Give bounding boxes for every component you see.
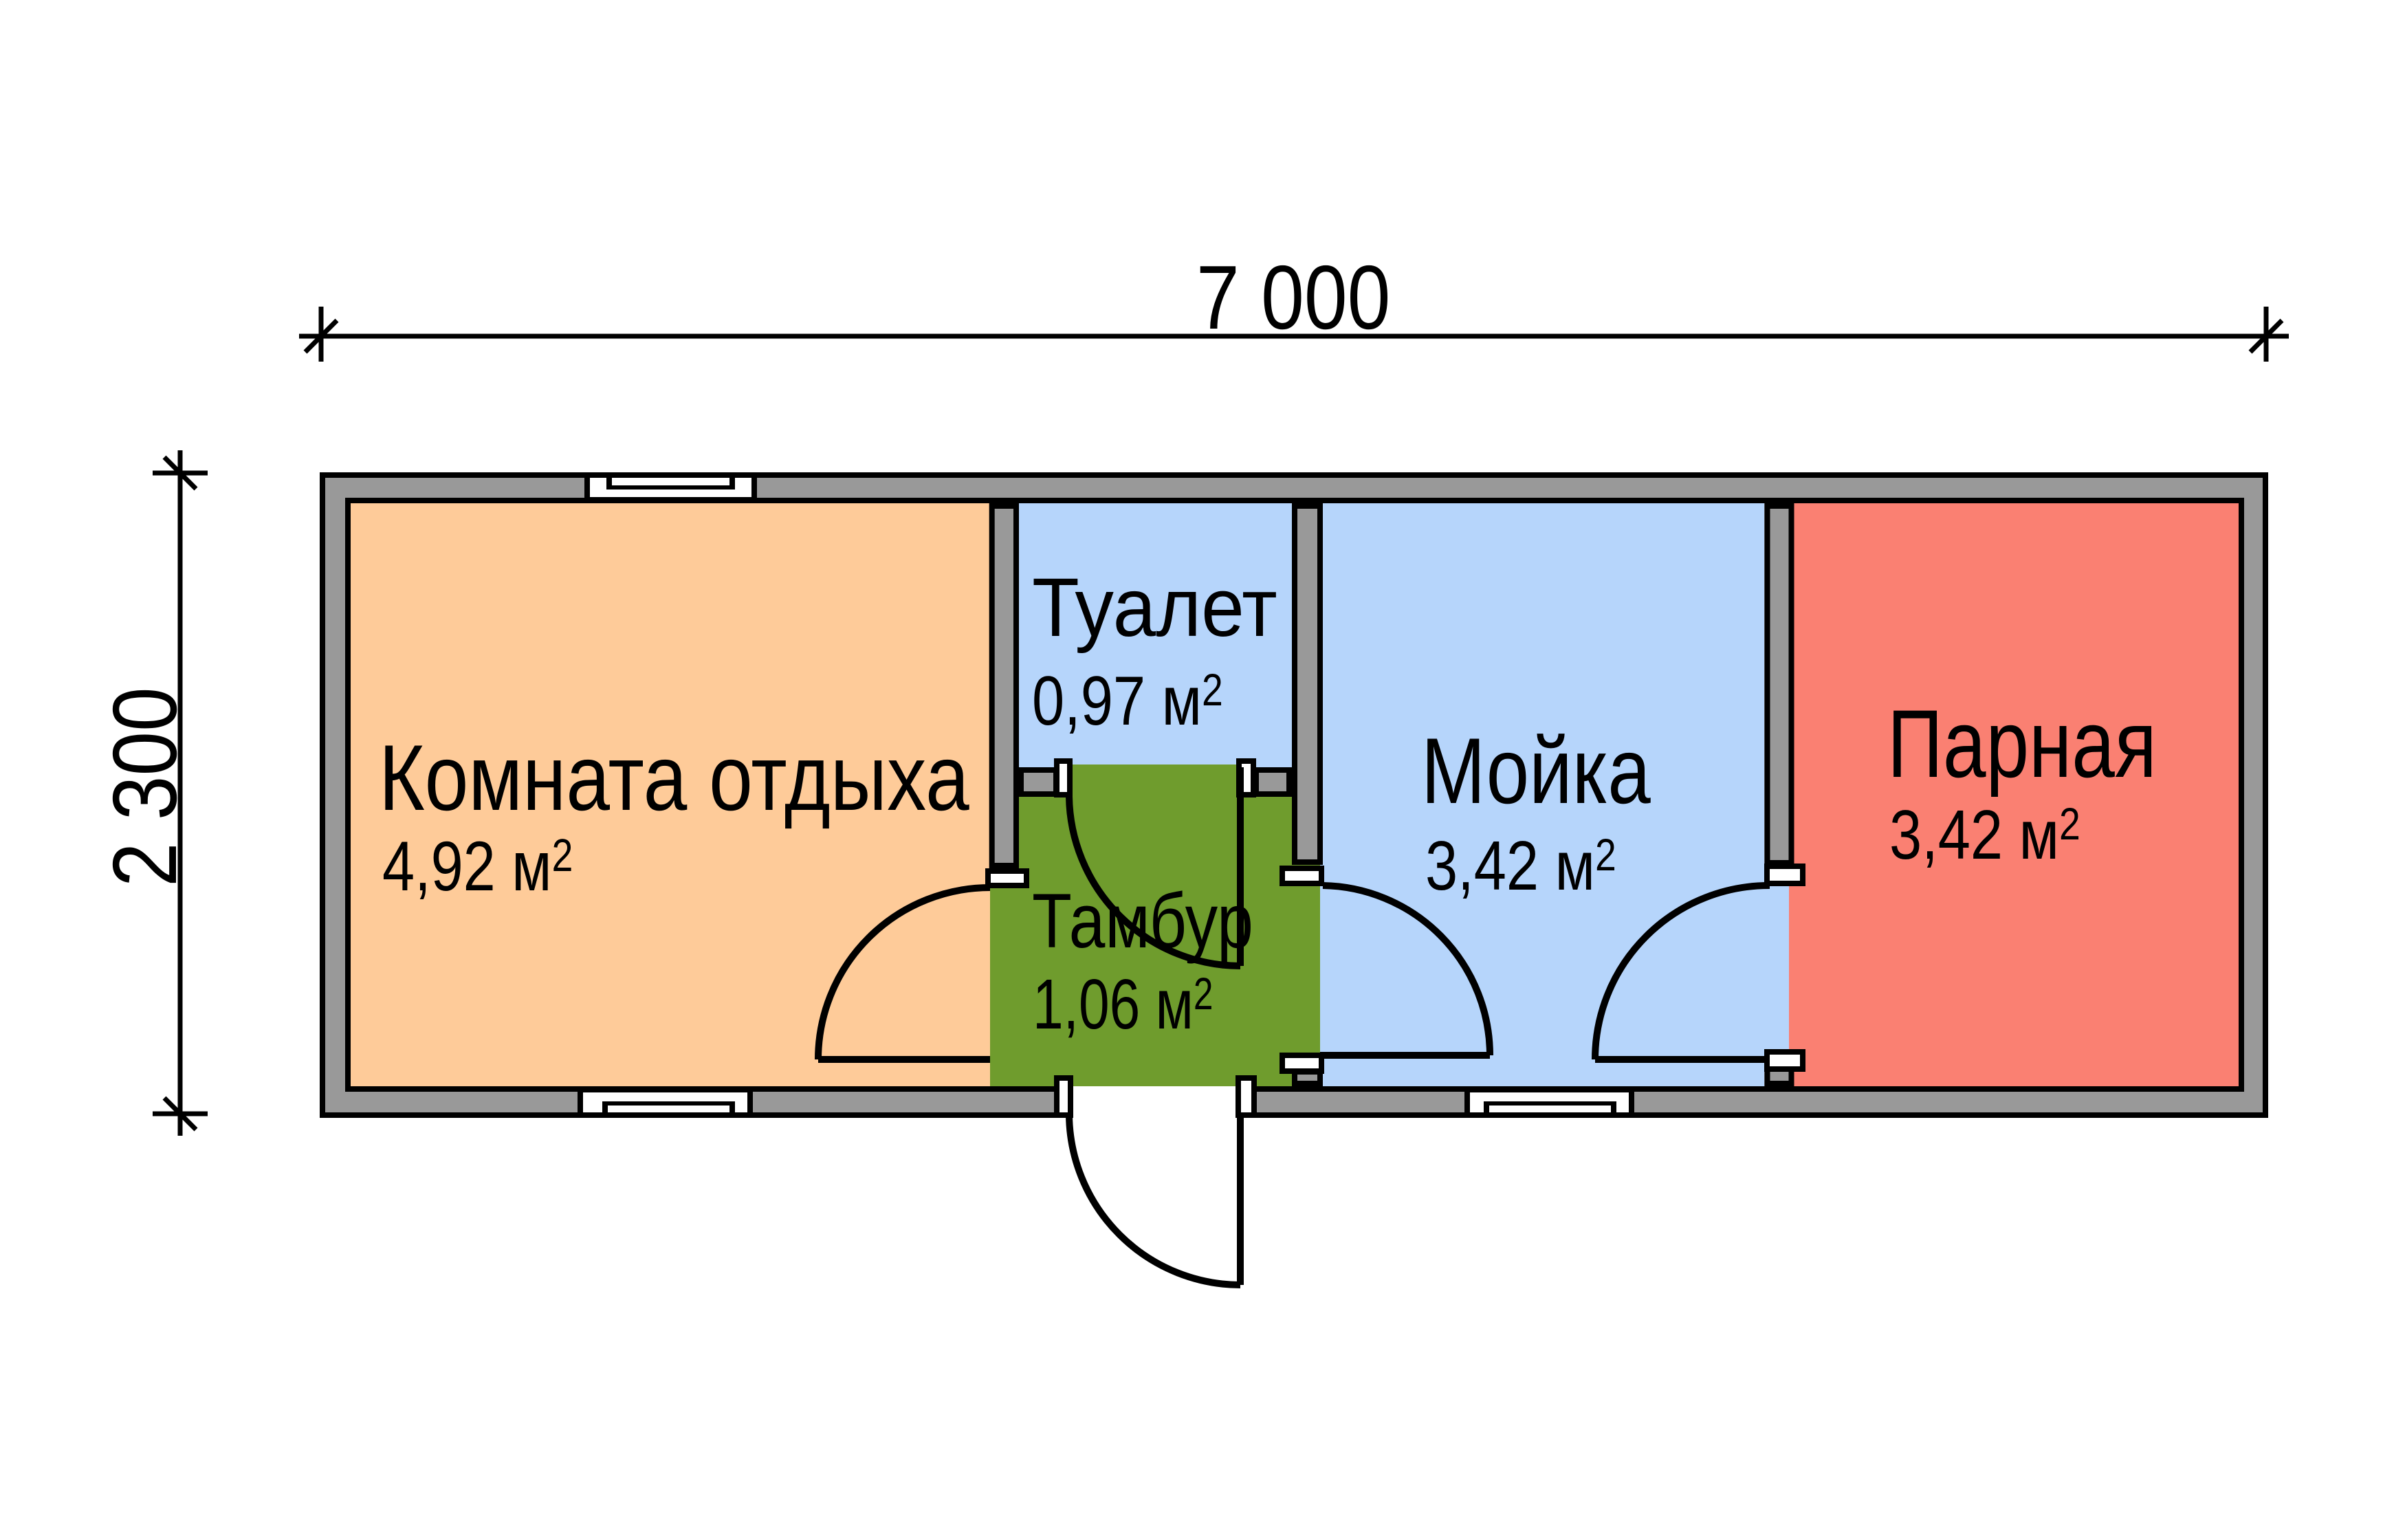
svg-text:7 000: 7 000: [1196, 247, 1390, 349]
svg-text:Мойка: Мойка: [1421, 719, 1651, 824]
svg-text:2 300: 2 300: [94, 687, 196, 887]
svg-text:0,97 м2: 0,97 м2: [1032, 662, 1223, 740]
svg-text:3,42 м2: 3,42 м2: [1889, 796, 2080, 874]
svg-text:4,92 м2: 4,92 м2: [382, 827, 573, 905]
svg-text:Тамбур: Тамбур: [1032, 878, 1253, 964]
svg-text:Парная: Парная: [1887, 690, 2157, 797]
svg-text:Туалет: Туалет: [1032, 560, 1277, 654]
svg-text:1,06 м2: 1,06 м2: [1033, 964, 1214, 1044]
svg-text:3,42 м2: 3,42 м2: [1425, 827, 1616, 905]
svg-text:Комната отдыха: Комната отдыха: [379, 725, 969, 830]
